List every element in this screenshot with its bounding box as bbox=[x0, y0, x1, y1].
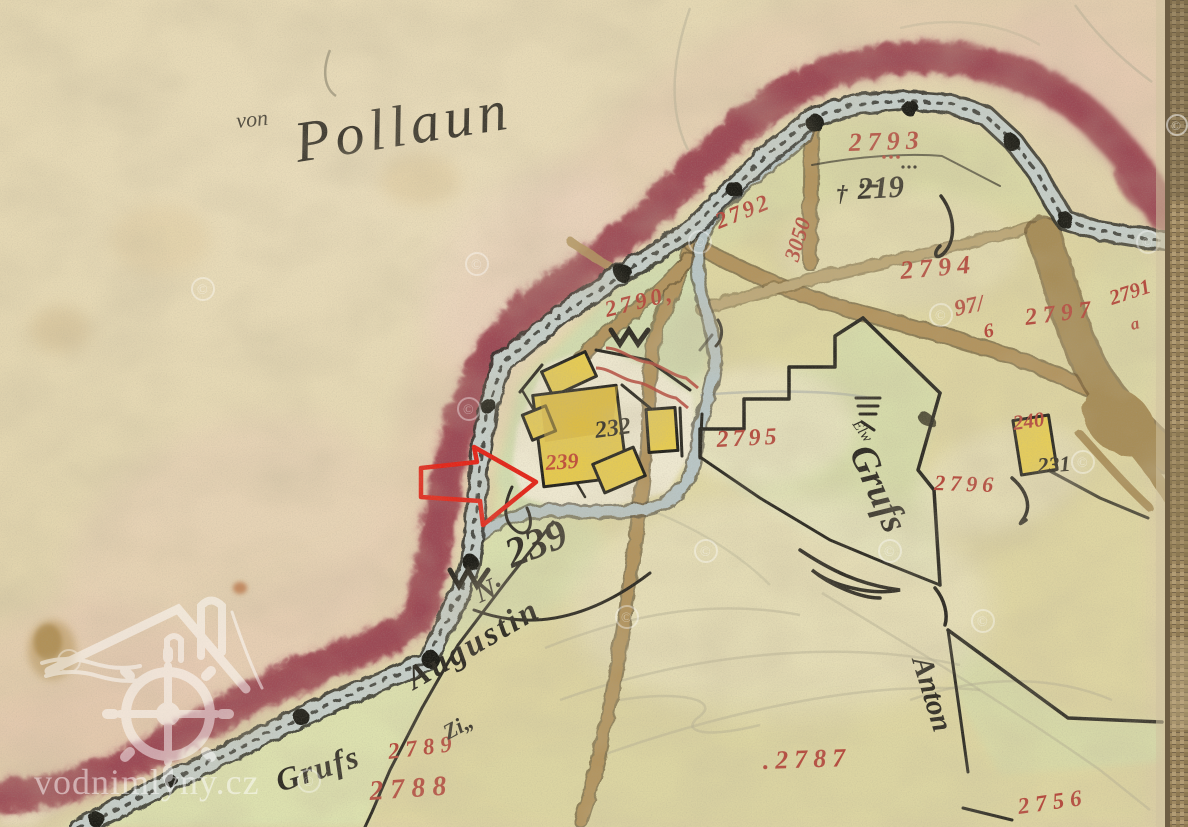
svg-text:©: © bbox=[197, 283, 208, 298]
svg-text:vodnimlyny.cz: vodnimlyny.cz bbox=[34, 762, 260, 802]
svg-text:©: © bbox=[1171, 118, 1181, 133]
